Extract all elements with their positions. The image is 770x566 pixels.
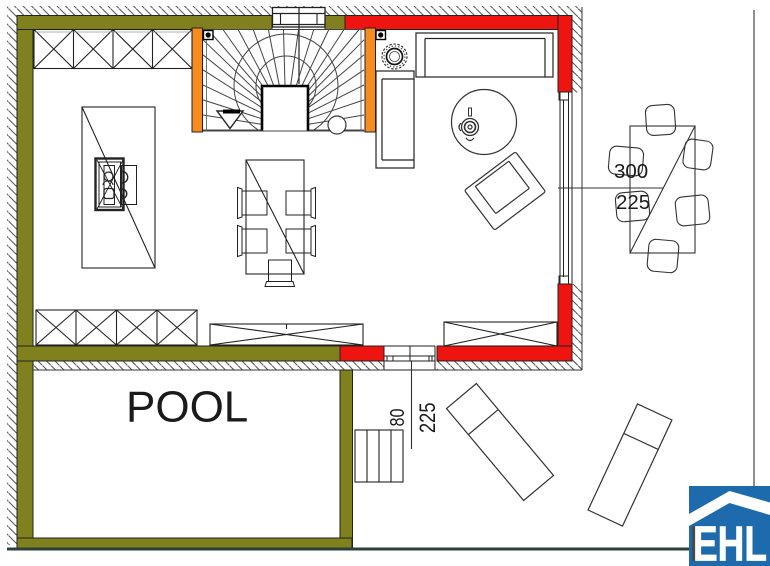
svg-text:225: 225	[415, 403, 440, 434]
svg-text:225: 225	[616, 191, 650, 214]
svg-text:POOL: POOL	[126, 383, 248, 432]
svg-text:EHL: EHL	[693, 518, 767, 566]
svg-text:80: 80	[386, 409, 409, 427]
svg-text:300: 300	[614, 160, 648, 183]
